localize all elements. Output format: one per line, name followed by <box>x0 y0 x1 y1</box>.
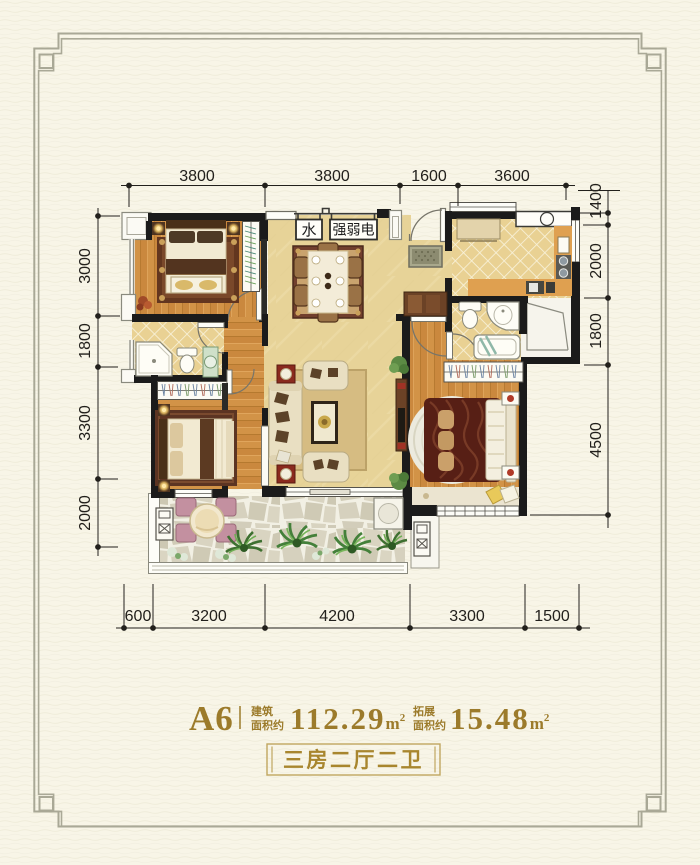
svg-text:强弱电: 强弱电 <box>333 222 375 238</box>
svg-text:A6: A6 <box>189 699 234 738</box>
svg-text:4500: 4500 <box>588 422 605 458</box>
svg-text:1600: 1600 <box>411 168 447 185</box>
svg-text:1500: 1500 <box>534 608 570 625</box>
svg-text:3300: 3300 <box>449 608 485 625</box>
svg-text:3300: 3300 <box>77 405 94 441</box>
svg-text:3000: 3000 <box>77 248 94 284</box>
svg-text:建筑: 建筑 <box>251 704 273 718</box>
svg-text:600: 600 <box>125 608 152 625</box>
svg-text:拓展: 拓展 <box>413 704 436 718</box>
svg-text:4200: 4200 <box>319 608 355 625</box>
svg-text:1400: 1400 <box>588 183 605 219</box>
svg-text:三房二厅二卫: 三房二厅二卫 <box>283 748 424 772</box>
svg-text:2000: 2000 <box>77 495 94 531</box>
svg-text:面积约: 面积约 <box>413 718 446 732</box>
svg-text:1800: 1800 <box>77 323 94 359</box>
svg-text:3800: 3800 <box>314 168 350 185</box>
svg-text:面积约: 面积约 <box>251 718 284 732</box>
svg-text:3200: 3200 <box>191 608 227 625</box>
svg-text:3600: 3600 <box>494 168 530 185</box>
svg-text:3800: 3800 <box>179 168 215 185</box>
svg-text:水: 水 <box>301 222 316 239</box>
svg-text:1800: 1800 <box>588 313 605 349</box>
svg-text:2000: 2000 <box>588 243 605 279</box>
